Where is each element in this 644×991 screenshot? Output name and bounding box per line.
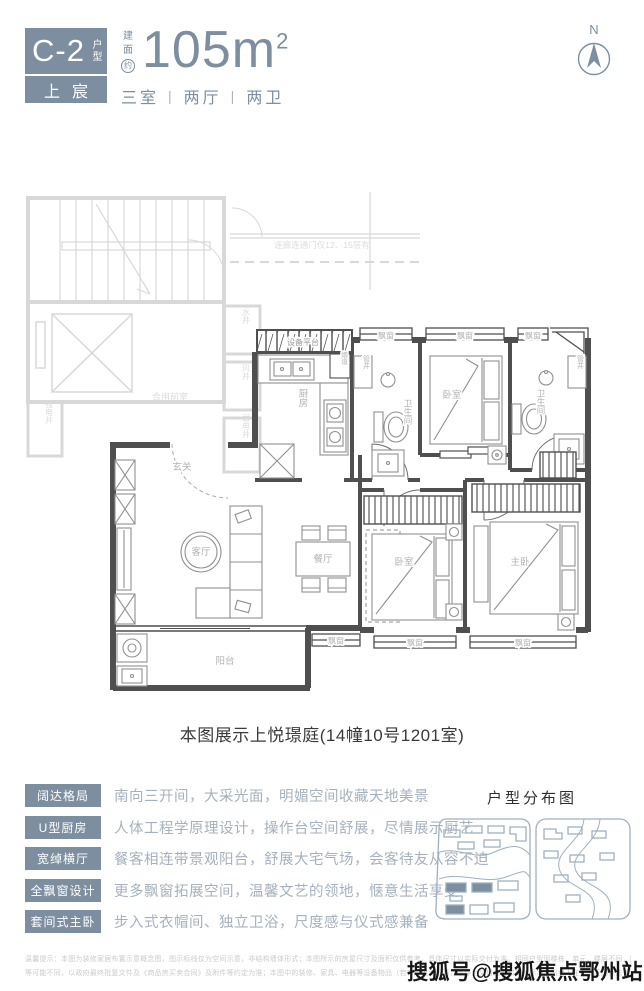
label-air-shaft: 风井: [242, 364, 251, 381]
floor-plan-svg: 合用前室 连廊连通门仅12、15层有 水井 风井 弱电井 强电井: [0, 190, 644, 715]
feature-row: U型厨房 人体工程学原理设计，操作台空间舒展，尽情展示厨艺: [25, 816, 425, 839]
area-block: 建 面 约 105m2 三室 | 两厅 | 两卫: [121, 24, 289, 108]
area-prefix-char: 建: [123, 30, 133, 44]
label-equipment-platform: 设备平台: [287, 337, 319, 347]
feature-desc: 更多飘窗拓展空间，温馨文艺的领地，惬意生活享受: [114, 880, 459, 901]
unit-badge: C-2 户型 上宸: [25, 28, 107, 103]
halls-count: 两厅: [184, 84, 222, 108]
feature-tag: 全飘窗设计: [25, 879, 101, 902]
unit-distribution: 户型分布图: [430, 787, 634, 926]
unit-code-suffix: 户型: [90, 39, 100, 63]
feature-row: 套间式主卧 步入式衣帽间、独立卫浴，尺度感与仪式感兼备: [25, 910, 425, 933]
feature-desc: 步入式衣帽间、独立卫浴，尺度感与仪式感兼备: [114, 911, 429, 932]
layout-summary: 三室 | 两厅 | 两卫: [121, 84, 289, 108]
feature-desc: 人体工程学原理设计，操作台空间舒展，尽情展示厨艺: [114, 817, 474, 838]
label-master-bedroom: 主卧: [510, 556, 530, 568]
compass: N: [574, 22, 614, 84]
area-prefix: 建 面 约: [121, 30, 135, 73]
distribution-map: [432, 817, 632, 921]
label-dining: 餐厅: [313, 553, 333, 565]
label-bedroom-bottom: 卧室: [394, 556, 413, 568]
entry-closets: [115, 460, 135, 624]
separator: |: [231, 88, 238, 104]
feature-tag: 阔达格局: [25, 784, 101, 807]
floorplan-page: C-2 户型 上宸 建 面 约 105m2 三室 | 两厅 | 两卫 N: [0, 0, 644, 991]
unit-badge-top: C-2 户型: [25, 28, 107, 74]
label-bay-window: 飘窗: [378, 331, 394, 341]
feature-desc: 南向三开间，大采光面，明媚空间收藏天地美景: [114, 785, 429, 806]
label-corridor-note: 连廊连通门仅12、15层有: [274, 240, 369, 250]
label-pipe-shaft: 管井: [363, 354, 371, 370]
label-bay-window: 飘窗: [328, 636, 344, 646]
label-bathroom1: 卫生间: [403, 399, 413, 425]
label-strong-current-shaft: 强电井: [45, 400, 54, 425]
feature-row: 阔达格局 南向三开间，大采光面，明媚空间收藏天地美景: [25, 784, 425, 807]
bathroom2-fixtures: [512, 356, 586, 464]
label-bathroom2: 卫生间: [536, 389, 546, 415]
label-pipe-shaft: 管井: [577, 354, 585, 370]
label-balcony: 阳台: [215, 655, 234, 667]
label-bay-window: 飘窗: [457, 331, 473, 341]
label-bay-window: 飘窗: [515, 638, 531, 648]
feature-tag: 宽绰横厅: [25, 847, 101, 870]
area-value: 105m2: [142, 24, 289, 76]
label-water-shaft: 水井: [242, 307, 251, 325]
label-kitchen: 厨房: [297, 389, 309, 409]
feature-row: 全飘窗设计 更多飘窗拓展空间，温馨文艺的领地，惬意生活享受: [25, 879, 425, 902]
unit-code: C-2: [32, 33, 85, 69]
feature-row: 宽绰横厅 餐客相连带景观阳台，舒展大宅气场，会客待友从容不迫: [25, 847, 425, 870]
project-name: 上宸: [25, 76, 107, 103]
compass-icon: [574, 39, 614, 79]
bathroom1-fixtures: [354, 356, 408, 476]
balcony-fixtures: [117, 634, 147, 686]
living-furniture: [181, 506, 262, 618]
watermark: 搜狐号@搜狐焦点鄂州站: [407, 956, 643, 986]
baths-count: 两卫: [246, 84, 284, 108]
separator: |: [168, 88, 175, 104]
distribution-title: 户型分布图: [430, 787, 634, 808]
compass-north-label: N: [574, 22, 614, 37]
label-living: 客厅: [191, 546, 211, 558]
area-sup: 2: [276, 29, 289, 54]
area-number: 105m: [142, 21, 276, 79]
label-bedroom-top: 卧室: [442, 389, 461, 401]
label-bay-window: 飘窗: [407, 638, 423, 648]
floor-plan: 合用前室 连廊连通门仅12、15层有 水井 风井 弱电井 强电井: [0, 190, 644, 715]
elevator-shaft: [36, 314, 132, 392]
label-entry-hall: 玄关: [172, 461, 192, 473]
plan-caption: 本图展示上悦璟庭(14幢10号1201室): [0, 721, 644, 746]
feature-tag: U型厨房: [25, 816, 101, 839]
rooms-count: 三室: [121, 84, 159, 108]
label-weak-current-shaft: 弱电井: [242, 414, 251, 439]
label-shared-lobby: 合用前室: [152, 391, 188, 402]
balcony-slider: [115, 626, 306, 631]
feature-tag: 套间式主卧: [25, 910, 101, 933]
kitchen-fixtures: [258, 354, 350, 478]
label-bay-window: 飘窗: [525, 331, 541, 341]
feature-list: 阔达格局 南向三开间，大采光面，明媚空间收藏天地美景 U型厨房 人体工程学原理设…: [25, 784, 425, 942]
stair-treads: [60, 200, 210, 300]
area-prefix-char: 面: [123, 44, 133, 58]
area-prefix-char-circled: 约: [121, 59, 135, 73]
